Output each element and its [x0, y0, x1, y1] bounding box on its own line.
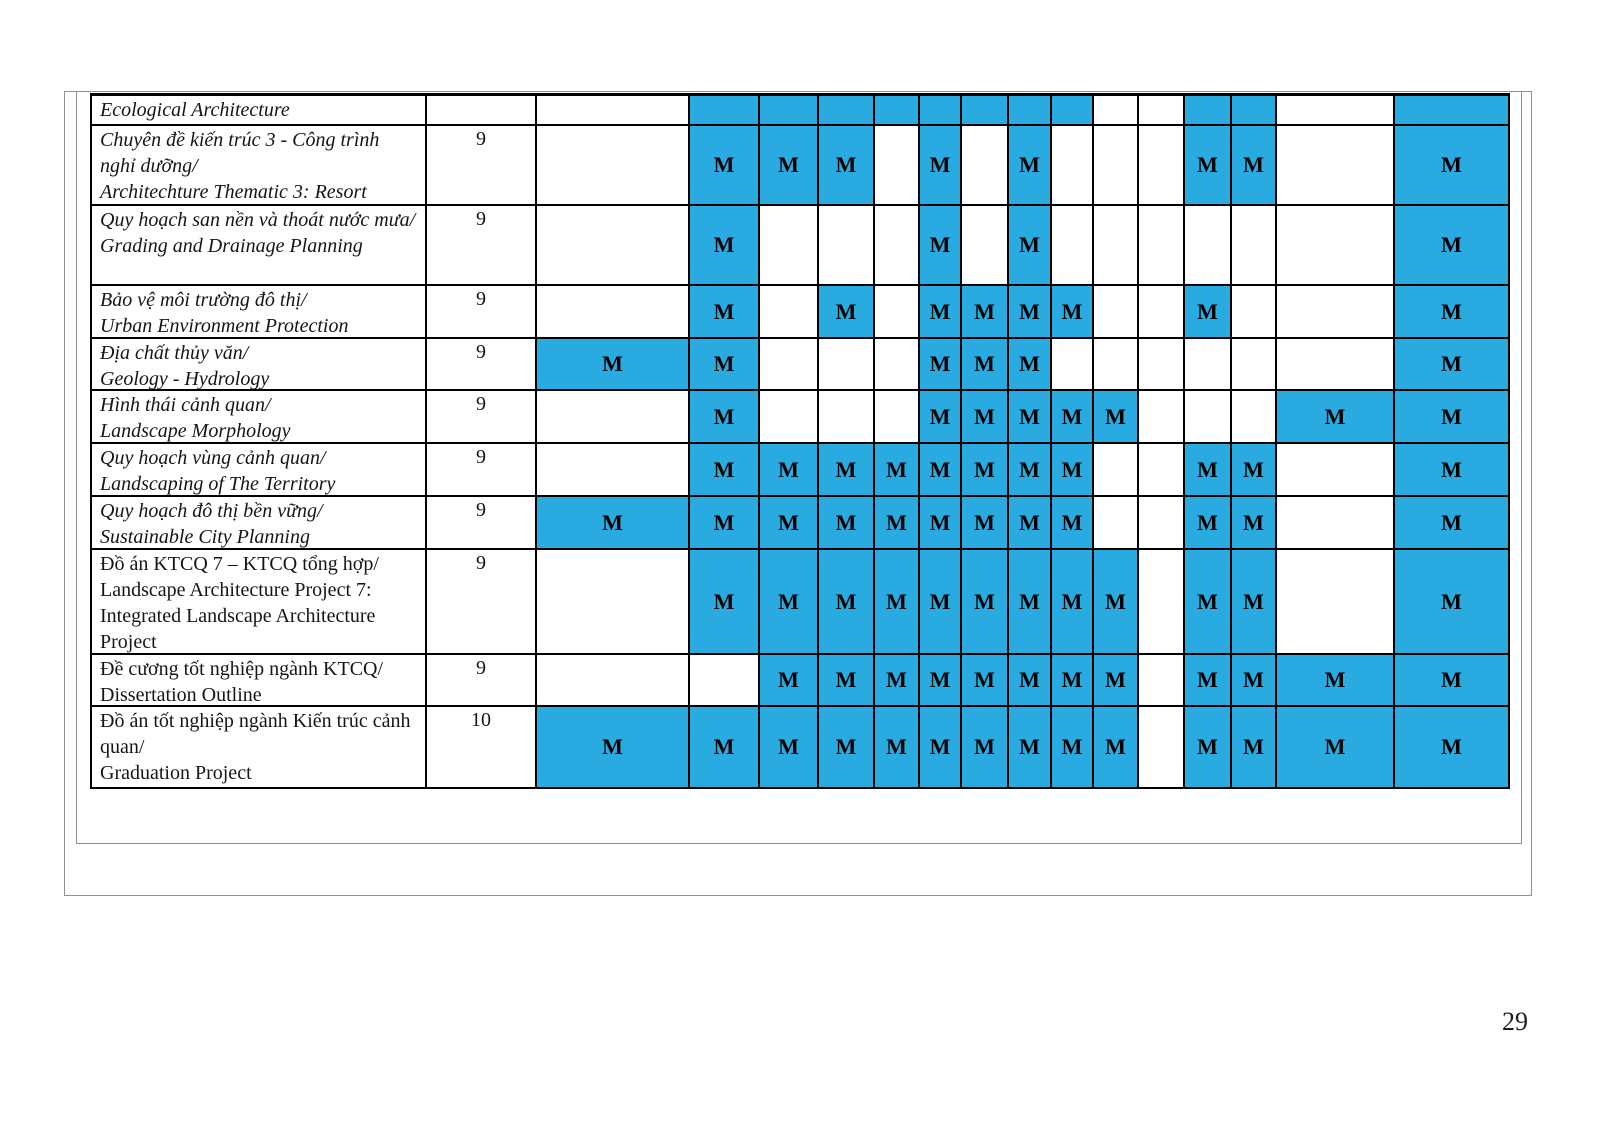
mark-cell: M [962, 550, 1009, 655]
mark-cell: M [1232, 497, 1277, 550]
mark-cell [1094, 286, 1139, 339]
mark-cell [875, 286, 920, 339]
curriculum-table: Ecological ArchitectureChuyên đề kiến tr… [90, 93, 1510, 789]
mark-cell: M [920, 550, 962, 655]
mark-cell: M [1009, 707, 1052, 789]
mark-cell [760, 96, 819, 126]
mark-cell: M [1009, 655, 1052, 707]
mark-cell [1185, 339, 1232, 391]
table-row: Đồ án tốt nghiệp ngành Kiến trúc cảnh qu… [92, 707, 1510, 789]
mark-cell: M [537, 497, 690, 550]
mark-cell [819, 339, 875, 391]
mark-cell: M [1009, 126, 1052, 206]
course-name-cell: Bảo vệ môi trường đô thị/Urban Environme… [92, 286, 427, 339]
mark-cell [1052, 126, 1094, 206]
mark-cell: M [690, 286, 760, 339]
semester-cell: 9 [427, 126, 537, 206]
mark-cell: M [920, 286, 962, 339]
mark-cell: M [819, 126, 875, 206]
mark-cell: M [690, 497, 760, 550]
mark-cell: M [690, 126, 760, 206]
mark-cell [690, 96, 760, 126]
semester-cell: 9 [427, 206, 537, 286]
course-name-en: Geology - Hydrology [100, 366, 419, 391]
mark-cell: M [1009, 339, 1052, 391]
mark-cell: M [1277, 707, 1395, 789]
mark-cell [1232, 286, 1277, 339]
course-name-vi: Địa chất thủy văn/ [100, 340, 419, 366]
mark-cell [962, 206, 1009, 286]
mark-cell [1277, 339, 1395, 391]
mark-cell: M [819, 497, 875, 550]
mark-cell [1052, 96, 1094, 126]
course-name-en: Dissertation Outline [100, 682, 419, 707]
mark-cell: M [875, 550, 920, 655]
table-row: Bảo vệ môi trường đô thị/Urban Environme… [92, 286, 1510, 339]
mark-cell [537, 655, 690, 707]
mark-cell: M [690, 339, 760, 391]
mark-cell: M [962, 444, 1009, 497]
course-name-cell: Chuyên đề kiến trúc 3 - Công trình nghỉ … [92, 126, 427, 206]
table-row: Ecological Architecture [92, 96, 1510, 126]
course-name-cell: Đề cương tốt nghiệp ngành KTCQ/Dissertat… [92, 655, 427, 707]
mark-cell [875, 206, 920, 286]
course-name-cell: Quy hoạch vùng cảnh quan/Landscaping of … [92, 444, 427, 497]
mark-cell [1139, 286, 1185, 339]
mark-cell [1139, 655, 1185, 707]
course-name-vi: Đề cương tốt nghiệp ngành KTCQ/ [100, 656, 419, 682]
table-row: Đề cương tốt nghiệp ngành KTCQ/Dissertat… [92, 655, 1510, 707]
table-row: Quy hoạch san nền và thoát nước mưa/Grad… [92, 206, 1510, 286]
mark-cell [819, 391, 875, 444]
course-name-en: Ecological Architecture [100, 97, 419, 123]
course-name-cell: Đồ án tốt nghiệp ngành Kiến trúc cảnh qu… [92, 707, 427, 789]
mark-cell: M [537, 707, 690, 789]
course-name-cell: Đồ án KTCQ 7 – KTCQ tổng hợp/Landscape A… [92, 550, 427, 655]
mark-cell [875, 126, 920, 206]
mark-cell: M [962, 286, 1009, 339]
mark-cell: M [920, 497, 962, 550]
mark-cell: M [1094, 707, 1139, 789]
mark-cell: M [819, 550, 875, 655]
mark-cell: M [1232, 655, 1277, 707]
table-row: Địa chất thủy văn/Geology - Hydrology9MM… [92, 339, 1510, 391]
mark-cell [1185, 391, 1232, 444]
mark-cell: M [1395, 391, 1510, 444]
semester-cell: 10 [427, 707, 537, 789]
mark-cell [1052, 339, 1094, 391]
mark-cell: M [962, 391, 1009, 444]
semester-cell: 9 [427, 497, 537, 550]
mark-cell: M [1395, 286, 1510, 339]
mark-cell [1277, 286, 1395, 339]
mark-cell: M [1395, 126, 1510, 206]
table-row: Chuyên đề kiến trúc 3 - Công trình nghỉ … [92, 126, 1510, 206]
mark-cell: M [1277, 655, 1395, 707]
mark-cell: M [1185, 286, 1232, 339]
course-name-vi: Đồ án KTCQ 7 – KTCQ tổng hợp/ [100, 551, 419, 577]
mark-cell: M [819, 707, 875, 789]
mark-cell [1139, 126, 1185, 206]
mark-cell: M [875, 444, 920, 497]
mark-cell: M [1232, 126, 1277, 206]
mark-cell [1052, 206, 1094, 286]
mark-cell: M [1052, 286, 1094, 339]
mark-cell: M [1009, 550, 1052, 655]
mark-cell: M [690, 444, 760, 497]
mark-cell [1094, 206, 1139, 286]
mark-cell: M [1009, 391, 1052, 444]
mark-cell: M [819, 444, 875, 497]
mark-cell: M [1052, 655, 1094, 707]
mark-cell: M [1185, 497, 1232, 550]
mark-cell [1277, 550, 1395, 655]
table-row: Quy hoạch vùng cảnh quan/Landscaping of … [92, 444, 1510, 497]
mark-cell [962, 96, 1009, 126]
course-name-en: Graduation Project [100, 760, 419, 786]
mark-cell [537, 286, 690, 339]
mark-cell [819, 96, 875, 126]
mark-cell: M [1395, 655, 1510, 707]
mark-cell [1139, 391, 1185, 444]
course-name-en: Grading and Drainage Planning [100, 233, 419, 259]
mark-cell [1009, 96, 1052, 126]
course-name-cell: Ecological Architecture [92, 96, 427, 126]
mark-cell: M [760, 444, 819, 497]
mark-cell: M [1009, 286, 1052, 339]
mark-cell: M [920, 444, 962, 497]
mark-cell: M [920, 391, 962, 444]
mark-cell [537, 206, 690, 286]
mark-cell [1094, 497, 1139, 550]
course-name-cell: Quy hoạch đô thị bền vững/Sustainable Ci… [92, 497, 427, 550]
mark-cell [875, 96, 920, 126]
course-name-en: Landscape Morphology [100, 418, 419, 444]
semester-cell [427, 96, 537, 126]
mark-cell: M [760, 126, 819, 206]
mark-cell: M [690, 550, 760, 655]
mark-cell: M [760, 707, 819, 789]
mark-cell [962, 126, 1009, 206]
course-name-cell: Quy hoạch san nền và thoát nước mưa/Grad… [92, 206, 427, 286]
mark-cell: M [1232, 707, 1277, 789]
mark-cell: M [1395, 206, 1510, 286]
mark-cell [760, 391, 819, 444]
table-row: Quy hoạch đô thị bền vững/Sustainable Ci… [92, 497, 1510, 550]
mark-cell: M [819, 286, 875, 339]
mark-cell [1094, 96, 1139, 126]
mark-cell: M [962, 497, 1009, 550]
mark-cell [537, 96, 690, 126]
mark-cell: M [962, 707, 1009, 789]
mark-cell [1277, 206, 1395, 286]
mark-cell [1139, 339, 1185, 391]
semester-cell: 9 [427, 550, 537, 655]
mark-cell: M [690, 391, 760, 444]
mark-cell: M [1094, 391, 1139, 444]
course-name-vi: Quy hoạch đô thị bền vững/ [100, 498, 419, 524]
mark-cell [819, 206, 875, 286]
page-number: 29 [1502, 1007, 1528, 1037]
semester-cell: 9 [427, 286, 537, 339]
mark-cell [920, 96, 962, 126]
table-row: Hình thái cảnh quan/Landscape Morphology… [92, 391, 1510, 444]
semester-cell: 9 [427, 444, 537, 497]
course-name-en: Sustainable City Planning [100, 524, 419, 550]
mark-cell: M [1009, 206, 1052, 286]
mark-cell: M [1185, 444, 1232, 497]
mark-cell: M [1185, 550, 1232, 655]
mark-cell: M [920, 655, 962, 707]
mark-cell [1139, 497, 1185, 550]
mark-cell [760, 339, 819, 391]
mark-cell: M [875, 707, 920, 789]
mark-cell: M [1185, 126, 1232, 206]
mark-cell [1395, 96, 1510, 126]
mark-cell [1232, 391, 1277, 444]
mark-cell: M [760, 497, 819, 550]
course-name-vi: Quy hoạch vùng cảnh quan/ [100, 445, 419, 471]
mark-cell [1139, 550, 1185, 655]
mark-cell [1094, 444, 1139, 497]
mark-cell [1232, 96, 1277, 126]
mark-cell [1232, 339, 1277, 391]
mark-cell: M [1052, 391, 1094, 444]
mark-cell: M [1395, 339, 1510, 391]
course-name-cell: Địa chất thủy văn/Geology - Hydrology [92, 339, 427, 391]
mark-cell [690, 655, 760, 707]
mark-cell [875, 339, 920, 391]
mark-cell [1139, 96, 1185, 126]
mark-cell: M [819, 655, 875, 707]
mark-cell: M [1232, 550, 1277, 655]
course-name-cell: Hình thái cảnh quan/Landscape Morphology [92, 391, 427, 444]
mark-cell [875, 391, 920, 444]
mark-cell: M [962, 655, 1009, 707]
mark-cell: M [1185, 655, 1232, 707]
mark-cell: M [690, 707, 760, 789]
mark-cell: M [1395, 707, 1510, 789]
mark-cell [537, 444, 690, 497]
mark-cell: M [1232, 444, 1277, 497]
table-row: Đồ án KTCQ 7 – KTCQ tổng hợp/Landscape A… [92, 550, 1510, 655]
mark-cell: M [920, 339, 962, 391]
mark-cell: M [875, 497, 920, 550]
mark-cell [537, 391, 690, 444]
course-name-en: Architechture Thematic 3: Resort [100, 179, 419, 205]
mark-cell: M [537, 339, 690, 391]
mark-cell [1185, 96, 1232, 126]
course-name-vi: Chuyên đề kiến trúc 3 - Công trình nghỉ … [100, 127, 419, 179]
mark-cell: M [760, 550, 819, 655]
mark-cell [1139, 707, 1185, 789]
mark-cell: M [1094, 655, 1139, 707]
mark-cell [1232, 206, 1277, 286]
mark-cell [537, 126, 690, 206]
course-name-vi: Hình thái cảnh quan/ [100, 392, 419, 418]
mark-cell: M [1052, 550, 1094, 655]
mark-cell [760, 286, 819, 339]
mark-cell: M [1395, 497, 1510, 550]
mark-cell [1277, 497, 1395, 550]
semester-cell: 9 [427, 655, 537, 707]
mark-cell: M [1052, 444, 1094, 497]
mark-cell: M [920, 707, 962, 789]
mark-cell: M [1277, 391, 1395, 444]
mark-cell [1139, 444, 1185, 497]
course-name-en: Landscaping of The Territory [100, 471, 419, 497]
course-name-vi: Quy hoạch san nền và thoát nước mưa/ [100, 207, 419, 233]
mark-cell: M [690, 206, 760, 286]
mark-cell [1185, 206, 1232, 286]
mark-cell [1094, 339, 1139, 391]
course-name-en: Urban Environment Protection [100, 313, 419, 339]
mark-cell [760, 206, 819, 286]
mark-cell [1277, 444, 1395, 497]
mark-cell: M [920, 126, 962, 206]
mark-cell: M [1052, 497, 1094, 550]
mark-cell [1277, 126, 1395, 206]
mark-cell: M [1094, 550, 1139, 655]
semester-cell: 9 [427, 339, 537, 391]
mark-cell: M [875, 655, 920, 707]
semester-cell: 9 [427, 391, 537, 444]
mark-cell: M [760, 655, 819, 707]
course-name-vi: Đồ án tốt nghiệp ngành Kiến trúc cảnh qu… [100, 708, 419, 760]
course-name-vi: Bảo vệ môi trường đô thị/ [100, 287, 419, 313]
mark-cell: M [920, 206, 962, 286]
mark-cell: M [1395, 444, 1510, 497]
mark-cell: M [1185, 707, 1232, 789]
mark-cell: M [1009, 497, 1052, 550]
mark-cell: M [962, 339, 1009, 391]
mark-cell: M [1395, 550, 1510, 655]
mark-cell [1139, 206, 1185, 286]
mark-cell: M [1009, 444, 1052, 497]
course-name-en: Landscape Architecture Project 7: Integr… [100, 577, 419, 655]
mark-cell [1277, 96, 1395, 126]
mark-cell: M [1052, 707, 1094, 789]
mark-cell [1094, 126, 1139, 206]
mark-cell [537, 550, 690, 655]
